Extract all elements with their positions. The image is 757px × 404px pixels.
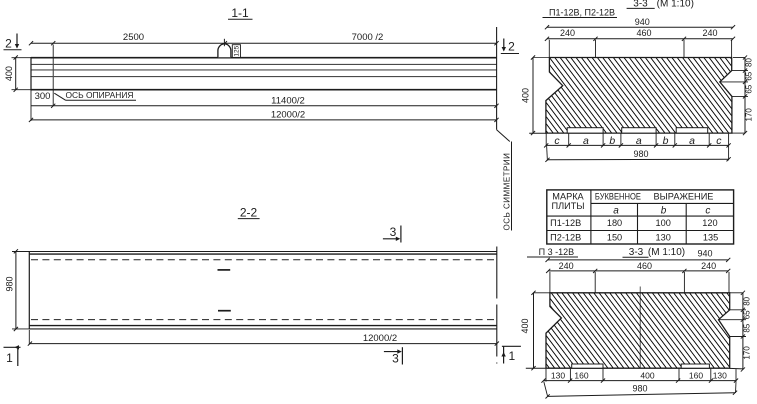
svg-text:П2-12В: П2-12В [550,232,581,242]
svg-text:ОСЬ СИММЕТРИИ: ОСЬ СИММЕТРИИ [503,153,512,231]
svg-text:120: 120 [702,218,717,228]
svg-text:3: 3 [392,352,399,366]
svg-text:130: 130 [551,371,565,381]
svg-text:400: 400 [4,66,14,81]
svg-text:b: b [661,205,667,216]
svg-text:180: 180 [607,218,622,228]
svg-text:80: 80 [745,58,754,67]
svg-text:12000/2: 12000/2 [363,333,397,344]
svg-text:1: 1 [508,349,515,363]
svg-text:b: b [609,135,615,147]
svg-text:b: b [663,135,669,147]
svg-text:130: 130 [713,371,727,381]
svg-text:c: c [705,205,710,216]
svg-text:135: 135 [703,232,718,242]
svg-text:160: 160 [574,371,588,381]
svg-text:240: 240 [702,28,717,38]
svg-text:65: 65 [745,71,754,80]
svg-text:170: 170 [745,108,754,122]
svg-text:980: 980 [633,149,648,159]
svg-text:170: 170 [742,346,751,360]
svg-text:400: 400 [640,371,654,381]
svg-text:240: 240 [701,261,716,271]
svg-text:П1-12В: П1-12В [550,218,581,228]
svg-text:400: 400 [520,318,530,333]
svg-text:a: a [583,135,589,147]
svg-text:a: a [613,205,619,216]
svg-text:130: 130 [656,232,671,242]
svg-text:240: 240 [559,261,574,271]
svg-text:a: a [689,135,695,147]
svg-text:(М 1:10): (М 1:10) [657,0,694,10]
svg-text:940: 940 [697,248,712,258]
svg-text:ОСЬ ОПИРАНИЯ: ОСЬ ОПИРАНИЯ [66,91,134,100]
svg-text:1-1: 1-1 [231,6,249,20]
svg-text:160: 160 [689,371,703,381]
svg-text:П1-12В, П2-12В: П1-12В, П2-12В [549,8,615,18]
svg-text:460: 460 [636,28,651,38]
svg-text:240: 240 [560,28,575,38]
svg-text:85: 85 [742,323,751,332]
svg-text:11400/2: 11400/2 [271,96,305,107]
svg-text:12000/2: 12000/2 [271,110,305,121]
svg-text:c: c [716,135,722,147]
svg-text:МАРКА: МАРКА [552,191,584,201]
svg-text:1: 1 [6,351,13,365]
svg-text:65: 65 [745,84,754,93]
svg-text:940: 940 [635,17,650,27]
svg-text:3-3: 3-3 [629,247,644,258]
svg-text:БУКВЕННОЕ: БУКВЕННОЕ [595,191,641,201]
svg-text:980: 980 [632,383,647,393]
svg-text:ВЫРАЖЕНИЕ: ВЫРАЖЕНИЕ [654,191,714,201]
svg-text:300: 300 [35,91,51,102]
svg-text:460: 460 [637,261,652,271]
svg-text:(М 1:10): (М 1:10) [648,247,685,258]
svg-text:125: 125 [233,45,240,56]
svg-text:100: 100 [656,218,671,228]
svg-text:c: c [554,135,560,147]
svg-text:7000 /2: 7000 /2 [352,32,384,43]
svg-text:65: 65 [742,310,751,319]
svg-text:3: 3 [390,225,397,239]
svg-text:980: 980 [4,276,14,291]
svg-text:2-2: 2-2 [240,206,258,220]
svg-text:2: 2 [5,37,12,51]
svg-text:ПЛИТЫ: ПЛИТЫ [552,201,585,211]
svg-text:2500: 2500 [123,32,144,43]
svg-text:400: 400 [520,88,530,103]
svg-text:a: a [636,135,642,147]
svg-text:П 3 -12В: П 3 -12В [539,247,575,257]
svg-text:80: 80 [742,296,751,305]
svg-text:2: 2 [508,40,515,54]
svg-text:150: 150 [607,232,622,242]
